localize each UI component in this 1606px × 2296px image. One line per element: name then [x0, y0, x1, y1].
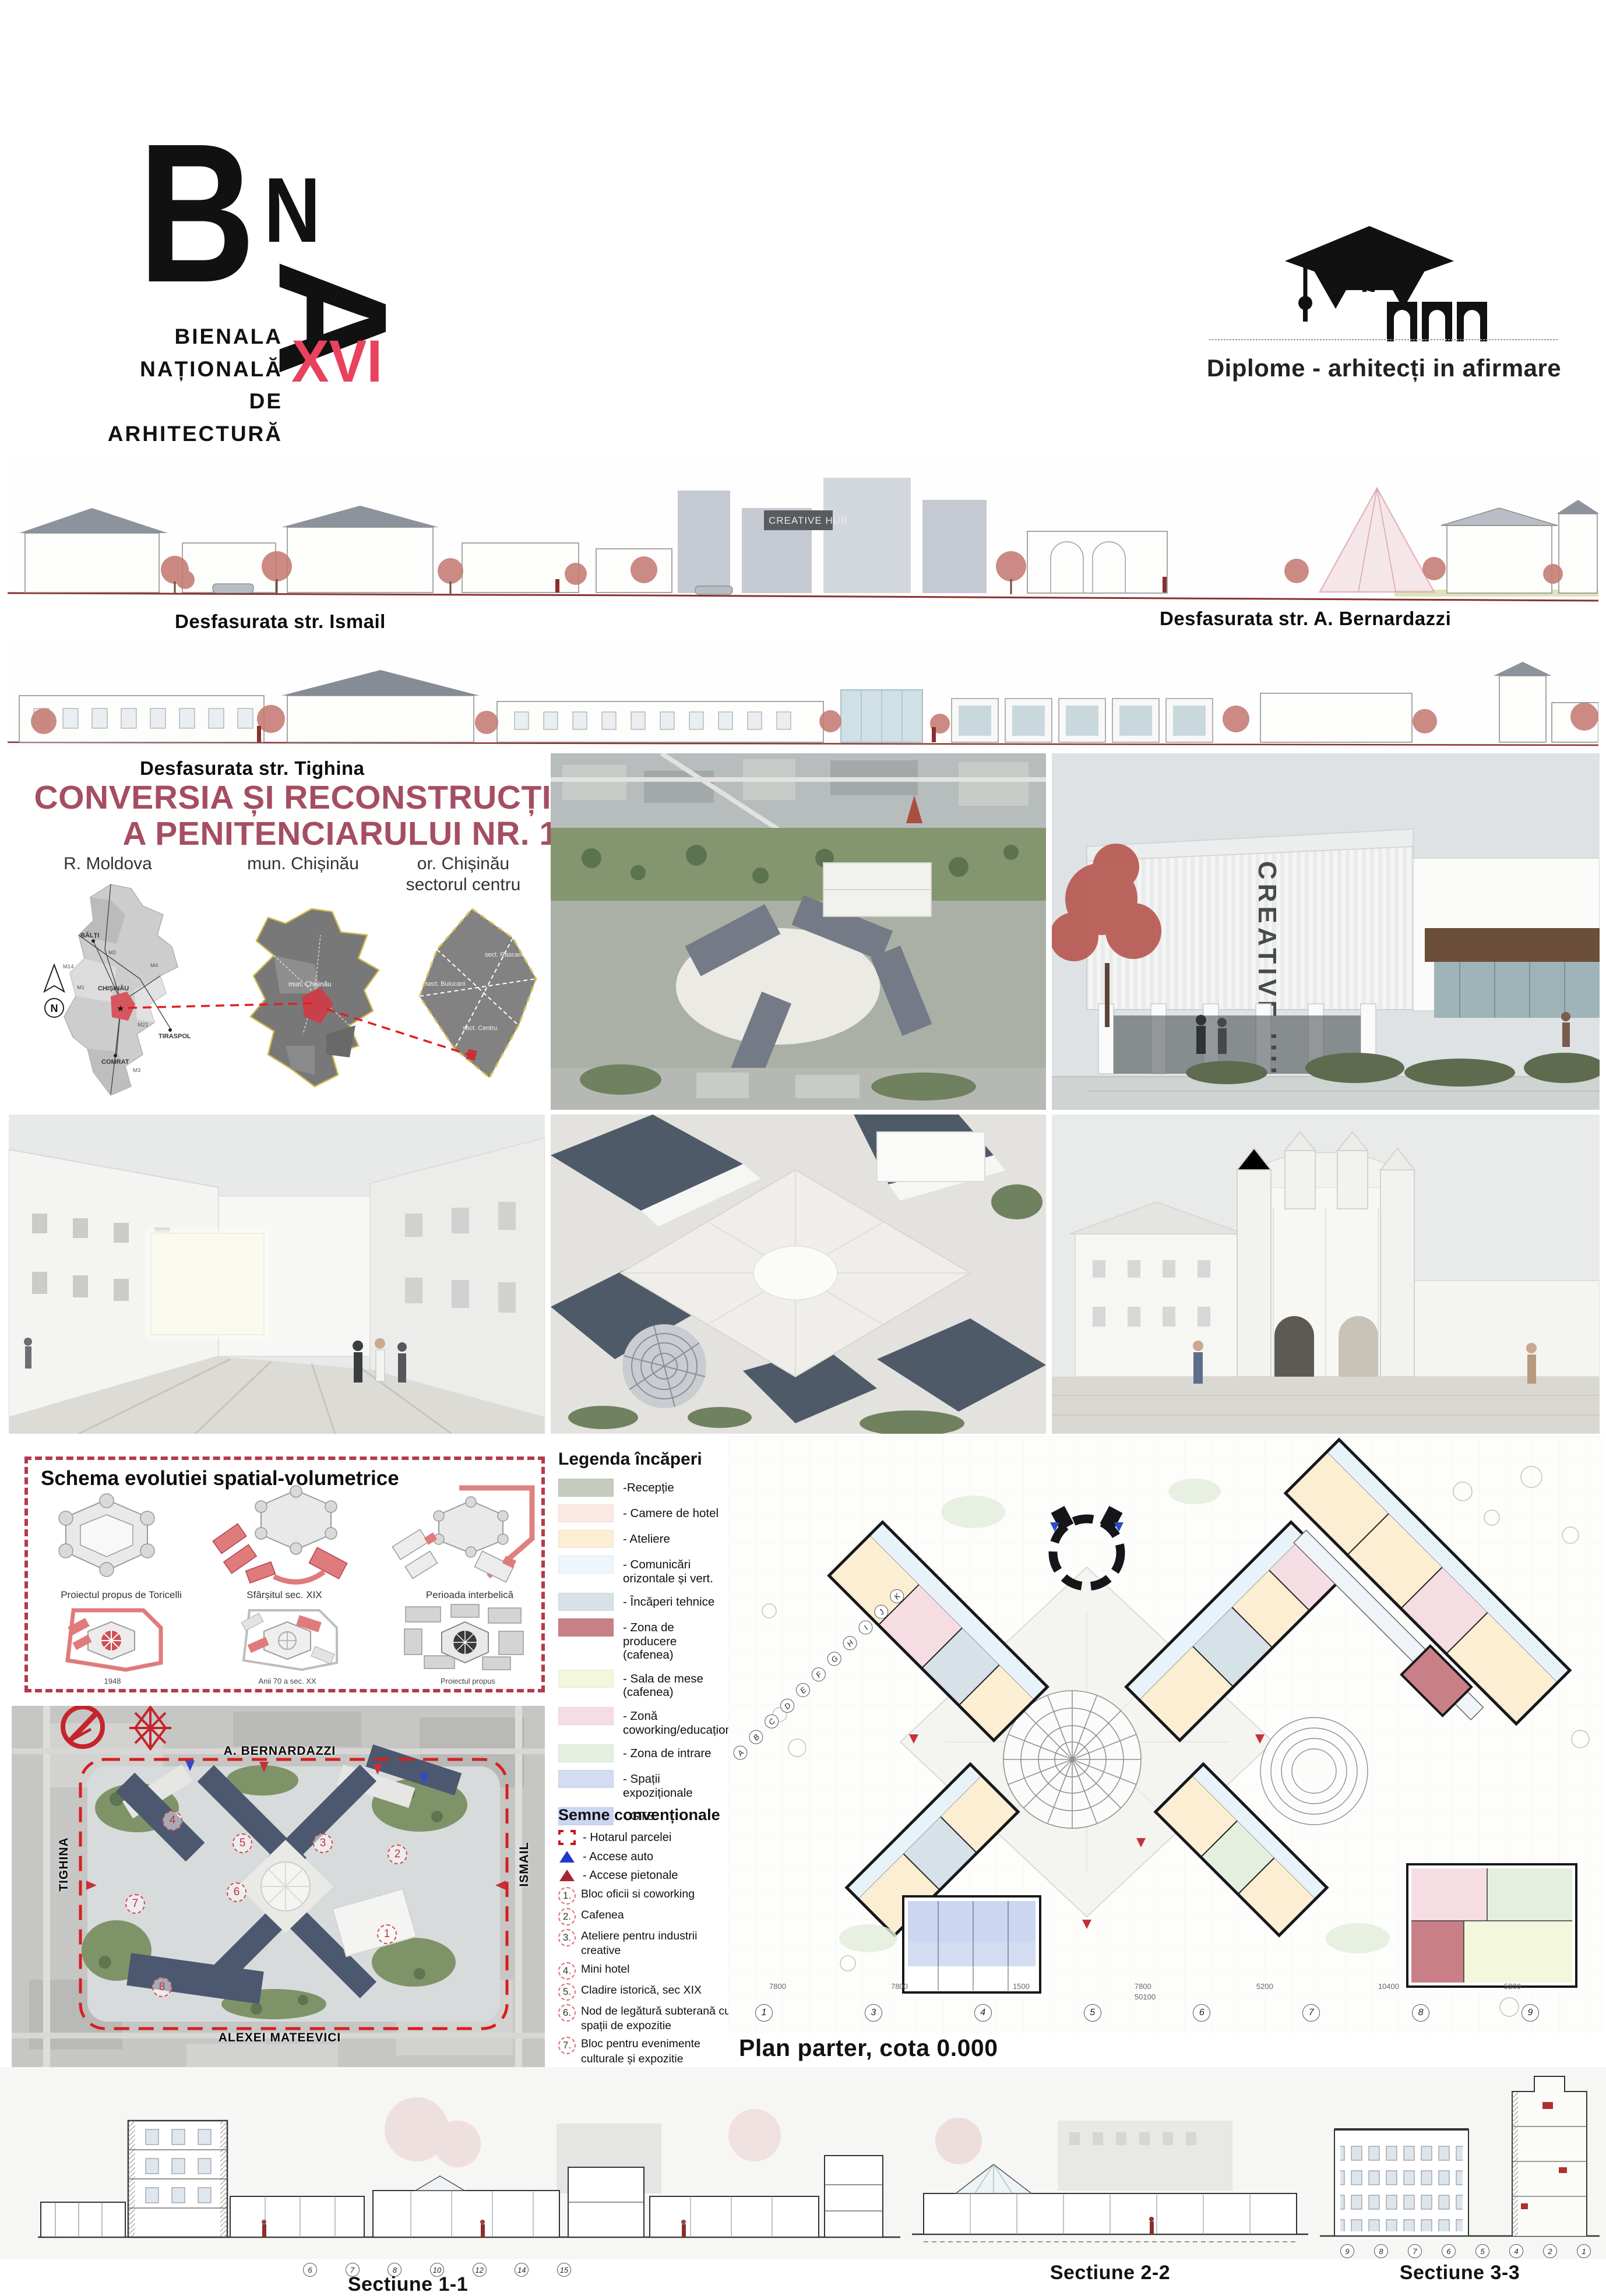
site-marker: 8	[152, 1977, 172, 1997]
legend-row: - Zona de intrare	[558, 1744, 728, 1762]
street-label-bernardazzi: A. BERNARDAZZI	[152, 1744, 408, 1758]
diplome-logo: Diplome - arhitecți in afirmare	[1195, 216, 1573, 390]
bna-title-line: ARHITECTURĂ	[55, 418, 283, 450]
render-towers	[1052, 1115, 1600, 1434]
schema-stage-label: Sfârșitul sec. XIX	[220, 1589, 348, 1601]
schema-stage-sub: Proiectul propus	[415, 1677, 520, 1685]
convention-label: Cafenea	[581, 1908, 624, 1925]
convention-auto-row: - Accese auto	[558, 1850, 733, 1864]
dimension-value: 10400	[1378, 1982, 1399, 1991]
legend-swatch	[558, 1744, 614, 1762]
convention-label: Cladire istorică, sec XIX	[581, 1983, 702, 2001]
convention-number: 2.	[558, 1908, 576, 1925]
site-marker: 7	[125, 1894, 145, 1914]
auto-access-icon	[558, 1850, 576, 1864]
conventions: Semne convenționale - Hotarul parcelei -…	[558, 1806, 733, 2103]
section-2-2-drawing	[906, 2109, 1314, 2255]
north-compass-icon: N	[34, 961, 75, 1025]
legend-row: -Recepție	[558, 1479, 728, 1497]
section-3-label: Sectiune 3-3	[1314, 2262, 1605, 2284]
convention-number: 5.	[558, 1983, 576, 2001]
legend-swatch	[558, 1618, 614, 1637]
grid-number-bubble: 6	[1193, 2004, 1210, 2022]
road-label: M3	[133, 1067, 140, 1074]
sector-label: sect. Rascani	[485, 951, 523, 958]
map-label-sector-line1: or. Chișinău	[385, 854, 542, 874]
bna-letter-b: B	[138, 128, 255, 298]
grid-number-bubble: 9	[1522, 2004, 1539, 2022]
legend-swatch	[558, 1707, 614, 1725]
parcel-boundary-icon	[558, 1830, 576, 1845]
convention-numbered-item: 7. Bloc pentru evenimente culturale și e…	[558, 2037, 733, 2066]
schema-stage-1-drawing	[45, 1489, 168, 1582]
legend-label: - Zona de intrare	[623, 1744, 712, 1761]
grid-number-bubble: 7	[1408, 2244, 1422, 2258]
convention-pedestrian-label: - Accese pietonale	[583, 1869, 678, 1882]
plan-grid-numbers: 13456789	[755, 2004, 1539, 2022]
map-municipality: mun. Chișinău	[233, 900, 390, 1098]
render-courtyard-gl	[9, 1115, 545, 1434]
convention-number: 7.	[558, 2037, 576, 2054]
schema-stage-3-drawing	[389, 1483, 538, 1588]
schema-stage-label: Perioada interbelică	[406, 1589, 534, 1601]
grid-number-bubble: 5	[1475, 2244, 1489, 2258]
tower-cluster	[1237, 1132, 1414, 1377]
grid-number-bubble: 3	[865, 2004, 882, 2022]
legend-list: -Recepție - Camere de hotel - Ateliere -…	[558, 1479, 728, 1825]
legend-row: - Zonă coworking/educațional	[558, 1707, 728, 1737]
site-marker: 6	[227, 1882, 246, 1902]
legend-label: - Ateliere	[623, 1530, 670, 1546]
convention-numbered-item: 1. Bloc oficii si coworking	[558, 1887, 733, 1904]
graduation-cap-house-icon	[1195, 216, 1573, 350]
elevation-strip-tighina-mateevici	[8, 640, 1598, 753]
legend-row: - Camere de hotel	[558, 1504, 728, 1522]
convention-label: Mini hotel	[581, 1962, 629, 1980]
elevation-label-bernardazzi: Desfasurata str. A. Bernardazzi	[1160, 608, 1451, 630]
grid-number-bubble: 1	[1577, 2244, 1591, 2258]
legend-label: - Zonă coworking/educațional	[623, 1707, 741, 1737]
section-1-1-drawing	[32, 2089, 906, 2258]
street-label-ismail: ISMAIL	[517, 1818, 531, 1911]
floor-plan-drawing	[728, 1436, 1603, 2033]
legend-swatch	[558, 1479, 614, 1497]
site-plan-drawing	[12, 1706, 545, 2074]
elevation-label-tighina: Desfasurata str. Tighina	[140, 757, 365, 780]
site-marker: 3	[313, 1833, 333, 1853]
schema-stage-label: Proiectul propus de Toricelli	[45, 1589, 197, 1601]
conventions-title: Semne convenționale	[558, 1806, 733, 1824]
legend-row: - Ateliere	[558, 1530, 728, 1548]
road-label: M2	[108, 950, 116, 956]
street-label-mateevici: ALEXEI MATEEVICI	[152, 2031, 408, 2045]
schema-stage-5-drawing	[232, 1604, 343, 1673]
map-label-sector-line2: sectorul centru	[385, 875, 542, 895]
legend-row: - Sala de mese (cafenea)	[558, 1670, 728, 1699]
grid-number-bubble: 1	[755, 2004, 773, 2022]
convention-numbered-item: 6. Nod de legătură subterană cu spații d…	[558, 2004, 733, 2034]
legend-swatch	[558, 1530, 614, 1548]
diplome-label: Diplome - arhitecți in afirmare	[1195, 354, 1573, 382]
legend-label: - Spații expoziționale	[623, 1770, 728, 1800]
convention-auto-label: - Accese auto	[583, 1850, 653, 1864]
convention-label: Ateliere pentru industrii creative	[581, 1929, 733, 1959]
render-creative-hub: CREATIVE HUB	[1052, 753, 1600, 1110]
grid-number-bubble: 2	[1543, 2244, 1557, 2258]
pedestrian-access-icon	[558, 1868, 576, 1882]
dimension-value: 7800	[769, 1982, 786, 1991]
section-3-3-drawing	[1314, 2068, 1605, 2243]
convention-number: 1.	[558, 1887, 576, 1904]
grid-number-bubble: 8	[1374, 2244, 1388, 2258]
site-marker: 1	[377, 1924, 397, 1944]
grid-number-bubble: 4	[1509, 2244, 1523, 2258]
bna-logo: B N A BIENALA NAȚIONALĂ DE ARHITECTURĂ 2…	[131, 122, 539, 425]
legend-label: - Sala de mese (cafenea)	[623, 1670, 728, 1699]
city-label: TIRASPOL	[159, 1033, 191, 1040]
section-3-bubbles: 98765421	[1340, 2244, 1591, 2258]
schema-stage-sub: Anii 70 a sec. XX	[235, 1677, 340, 1685]
bna-letter-n: N	[264, 169, 321, 252]
creative-hub-sign-small: CREATIVE HUB	[769, 515, 848, 526]
schema-stage-6-drawing	[401, 1602, 529, 1673]
legend-row: - Încăperi tehnice	[558, 1593, 728, 1611]
dimension-value: 5200	[1256, 1982, 1273, 1991]
grid-number-bubble: 6	[1442, 2244, 1456, 2258]
render-aerial-city	[551, 753, 1046, 1110]
elevation-label-ismail: Desfasurata str. Ismail	[175, 611, 386, 633]
legend-swatch	[558, 1770, 614, 1788]
dimension-value: 7800	[891, 1982, 908, 1991]
convention-numbered-item: 5. Cladire istorică, sec XIX	[558, 1983, 733, 2001]
plan-dimension-row: 78007800150078005200104005200	[769, 1982, 1521, 1991]
dimension-value: 7800	[1135, 1982, 1151, 1991]
legend: Legenda încăperi -Recepție - Camere de h…	[558, 1449, 728, 1833]
grid-number-bubble: 5	[1084, 2004, 1101, 2022]
convention-number: 3.	[558, 1929, 576, 1946]
legend-swatch	[558, 1593, 614, 1611]
grid-number-bubble: 15	[557, 2263, 571, 2277]
convention-numbered-item: 3. Ateliere pentru industrii creative	[558, 1929, 733, 1959]
convention-number: 6.	[558, 2004, 576, 2022]
convention-pedestrian-row: - Accese pietonale	[558, 1868, 733, 1882]
grid-number-bubble: 4	[974, 2004, 992, 2022]
legend-label: - Camere de hotel	[623, 1504, 719, 1521]
road-label: M4	[150, 962, 158, 969]
convention-label: Bloc pentru evenimente culturale și expo…	[581, 2037, 733, 2066]
schema-evolution-box: Schema evolutiei spatial-volumetrice	[24, 1456, 545, 1692]
map-label-moldova: R. Moldova	[35, 854, 181, 874]
legend-swatch	[558, 1556, 614, 1574]
convention-boundary-row: - Hotarul parcelei	[558, 1830, 733, 1845]
bna-title-line: BIENALA	[55, 320, 283, 353]
site-plan: A. BERNARDAZZI TIGHINA ISMAIL ALEXEI MAT…	[12, 1706, 545, 2074]
convention-label: Nod de legătură subterană cu spații de e…	[581, 2004, 733, 2034]
legend-row: - Spații expoziționale	[558, 1770, 728, 1800]
convention-numbered-item: 2. Cafenea	[558, 1908, 733, 1925]
bna-edition: XVI	[291, 327, 382, 396]
map-sector: sect. Rascani sect. Buiucani sect. Centr…	[402, 903, 545, 1095]
floor-plan-label: Plan parter, cota 0.000	[739, 2034, 998, 2062]
north-letter: N	[51, 1003, 58, 1014]
map-label-municipality: mun. Chișinău	[230, 854, 376, 874]
elevation-strip-ismail-bernardazzi: CREATIVE HUB	[8, 454, 1598, 606]
legend-label: - Încăperi tehnice	[623, 1593, 714, 1609]
dimension-value: 1500	[1013, 1982, 1030, 1991]
legend-label: - Comunicări orizontale și vert.	[623, 1556, 728, 1585]
schema-stage-4-drawing	[56, 1604, 167, 1673]
legend-label: - Zona de producere (cafenea)	[623, 1618, 728, 1662]
municipality-annotation: mun. Chișinău	[288, 981, 332, 988]
section-1-label: Sectiune 1-1	[262, 2273, 554, 2296]
convention-label: Bloc oficii si coworking	[581, 1887, 695, 1904]
sector-label: sect. Buiucani	[425, 981, 465, 987]
city-label: CHIȘINĂU	[98, 985, 129, 992]
legend-row: - Comunicări orizontale și vert.	[558, 1556, 728, 1585]
city-label: COMRAT	[101, 1059, 129, 1066]
convention-numbered-item: 4. Mini hotel	[558, 1962, 733, 1980]
legend-label: -Recepție	[623, 1479, 674, 1495]
convention-number: 4.	[558, 1962, 576, 1980]
bna-title-line: DE	[55, 385, 283, 418]
grid-number-bubble: 9	[1340, 2244, 1354, 2258]
legend-swatch	[558, 1670, 614, 1688]
render-aerial-plaza	[551, 1115, 1046, 1434]
section-2-label: Sectiune 2-2	[906, 2262, 1314, 2284]
bna-title-line: NAȚIONALĂ	[55, 353, 283, 386]
schema-stage-sub: 1948	[63, 1677, 162, 1685]
site-marker: 5	[233, 1833, 252, 1853]
site-marker: 2	[388, 1844, 407, 1864]
convention-boundary-label: - Hotarul parcelei	[583, 1831, 671, 1844]
site-marker: 4	[163, 1811, 182, 1831]
road-label: M1	[77, 985, 84, 991]
sector-label: sect. Centru	[463, 1025, 497, 1032]
legend-row: - Zona de producere (cafenea)	[558, 1618, 728, 1662]
schema-stage-2-drawing	[209, 1484, 354, 1586]
legend-title: Legenda încăperi	[558, 1449, 728, 1469]
svg-text:★: ★	[117, 1004, 124, 1014]
legend-swatch	[558, 1504, 614, 1522]
plan-total-dimension: 50100	[769, 1992, 1521, 2001]
street-label-tighina: TIGHINA	[57, 1818, 71, 1911]
grid-number-bubble: 8	[1412, 2004, 1429, 2022]
grid-number-bubble: 7	[1302, 2004, 1320, 2022]
city-label: BĂLȚI	[80, 932, 99, 939]
dimension-value: 5200	[1504, 1982, 1521, 1991]
road-label: M21	[138, 1022, 148, 1028]
